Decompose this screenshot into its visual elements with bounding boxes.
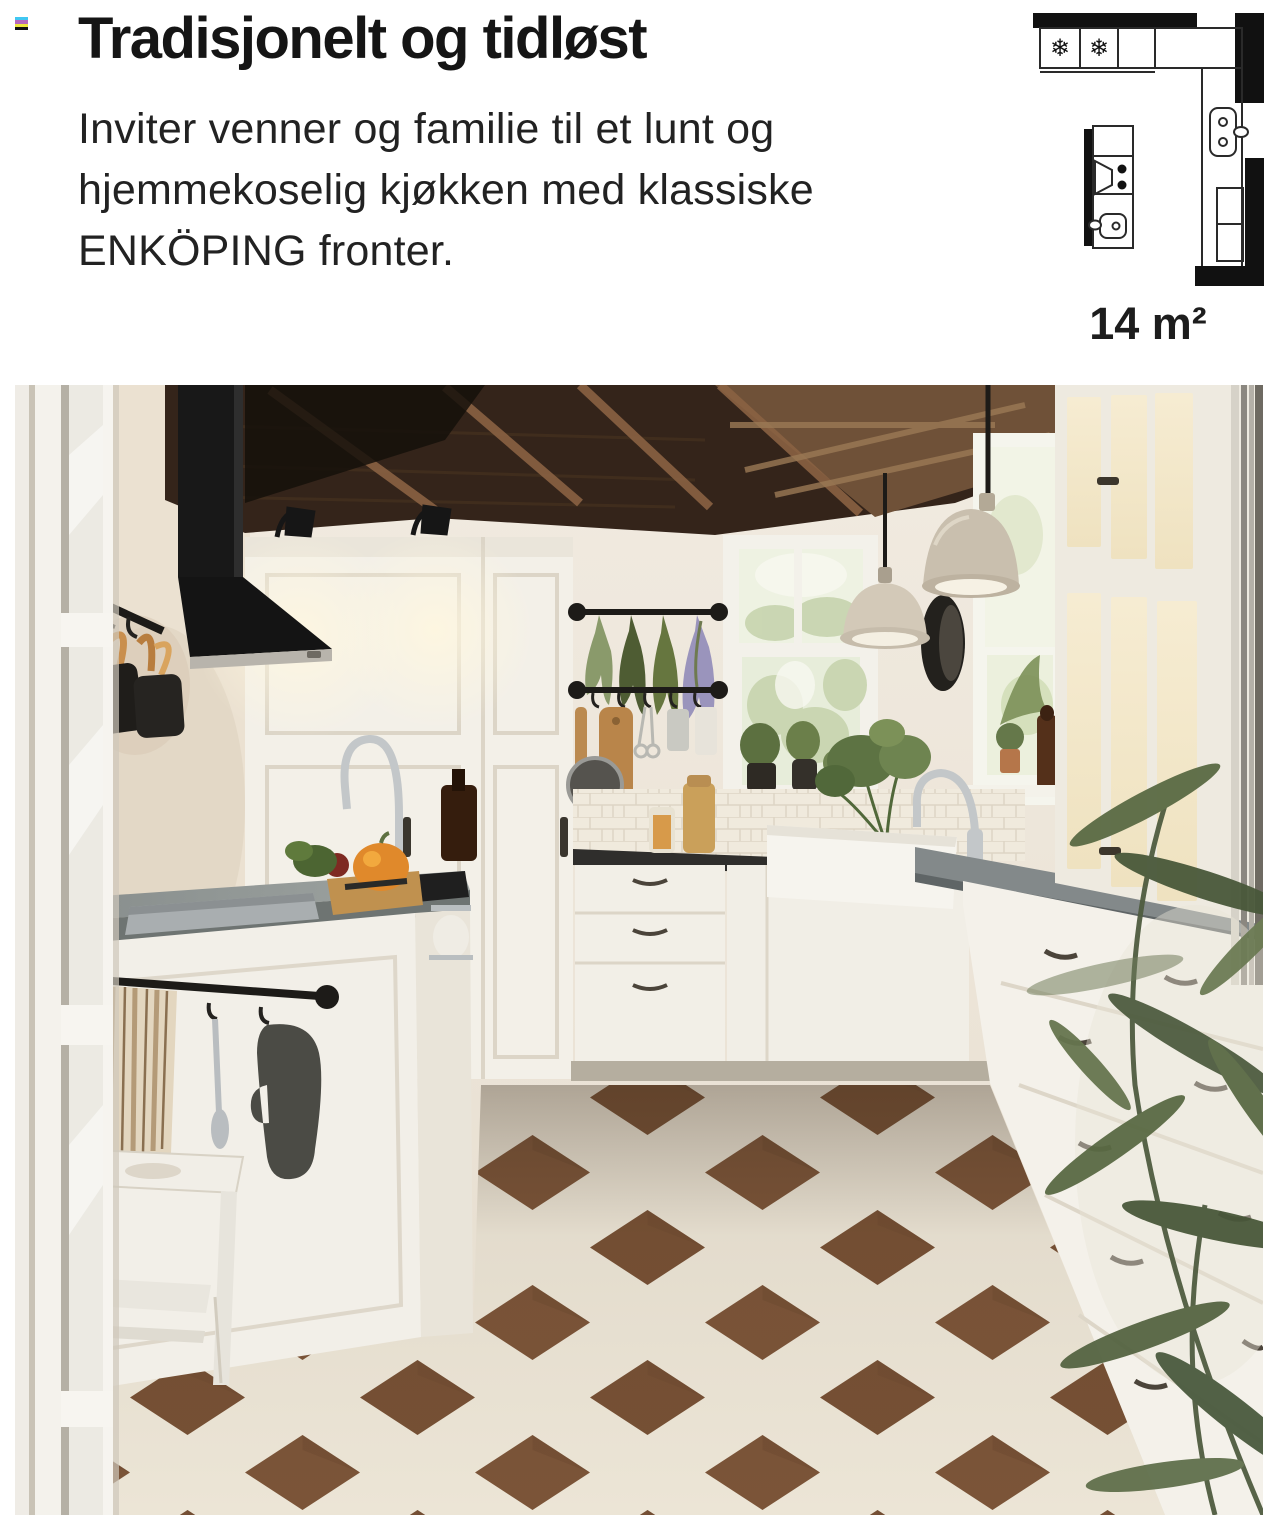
fridge-snowflake-icon: ❄ [1089,35,1109,62]
cabinet-handle [403,817,411,857]
intro-line-2: hjemmekoselig kjøkken med klassiske [78,160,1008,221]
island-end-panel [415,909,473,1337]
kitchen-photo-frame [15,385,1263,1515]
plan-island [1084,126,1133,248]
kitchen-photo [15,385,1263,1515]
catalog-page: Tradisjonelt og tidløst Inviter venner o… [0,0,1280,1515]
plan-sink [1210,108,1236,156]
floorplan-diagram: ❄ ❄ [1028,8,1268,294]
plan-right-counter-run [1155,68,1248,270]
right-window [967,433,1063,805]
floorplan-area-label: 14 m² [1028,298,1268,350]
plan-hood-symbol [1095,161,1112,194]
hanging-cup [695,707,717,755]
intro-line-3: ENKÖPING fronter. [78,221,1008,282]
toe-kick-strip [571,1061,991,1081]
intro-line-1: Inviter venner og familie til et lunt og [78,99,1008,160]
plan-wall-top-right [1235,13,1264,103]
plan-island-faucet [1089,221,1101,230]
hanging-cup [667,709,689,751]
print-mark-black-stripe [15,27,28,30]
intro-paragraph: Inviter venner og familie til et lunt og… [78,99,1008,282]
cabinet-handle [560,817,568,857]
page-title: Tradisjonelt og tidløst [78,6,1008,73]
wall-clock [921,595,965,691]
plan-sink-faucet [1234,127,1248,137]
plan-wall-top [1033,13,1197,28]
french-door-frame [15,385,119,1515]
print-registration-mark [15,17,28,30]
intro-block: Tradisjonelt og tidløst Inviter venner o… [78,6,1008,282]
freezer-snowflake-icon: ❄ [1050,35,1070,62]
floorplan-block: ❄ ❄ [1028,8,1268,350]
plan-wall-bottom [1195,266,1264,286]
oil-bottle [441,785,477,861]
plan-upper-cabinet-row [1040,28,1242,72]
